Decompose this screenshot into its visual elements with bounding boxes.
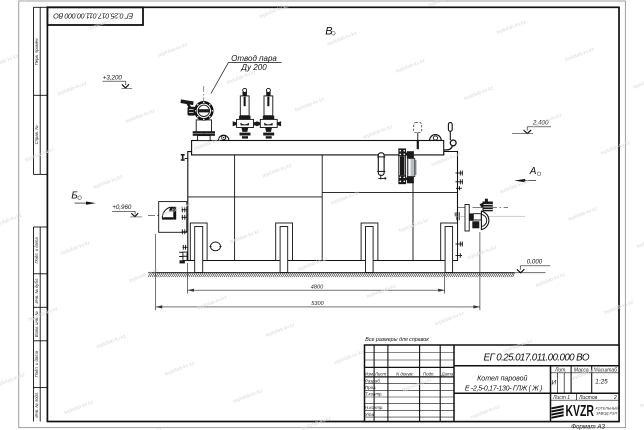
svg-text:Лист: Лист [374, 371, 387, 376]
svg-text:Листов: Листов [578, 395, 598, 401]
svg-text:Все размеры для справок: Все размеры для справок [365, 337, 429, 343]
svg-text:Б: Б [71, 191, 78, 202]
svg-text:И: И [552, 379, 557, 386]
svg-text:Утв.: Утв. [365, 412, 375, 417]
svg-text:ЕГ 0.25.017.011.00.000 ВО: ЕГ 0.25.017.011.00.000 ВО [53, 12, 133, 21]
svg-text:Котел паровой: Котел паровой [477, 375, 527, 383]
svg-text:Н.контр.: Н.контр. [365, 405, 384, 410]
svg-text:В: В [325, 25, 332, 37]
svg-text:4800: 4800 [311, 284, 324, 290]
svg-text:Разраб.: Разраб. [365, 378, 381, 383]
svg-text:Подп. и дата: Подп. и дата [34, 350, 39, 377]
svg-text:Лист 1: Лист 1 [552, 395, 570, 401]
svg-text:+3,200: +3,200 [103, 74, 123, 81]
svg-text:Справ. №: Справ. № [34, 125, 39, 144]
svg-text:ЗАВОД РЭП: ЗАВОД РЭП [596, 411, 617, 415]
svg-text:N докум.: N докум. [396, 371, 414, 376]
svg-text:Пров.: Пров. [365, 385, 377, 390]
svg-text:А: А [529, 166, 537, 177]
svg-text:Инв. № дубл.: Инв. № дубл. [34, 278, 39, 304]
svg-text:0,000: 0,000 [527, 259, 543, 266]
svg-text:5300: 5300 [311, 301, 324, 307]
svg-text:Т.контр.: Т.контр. [365, 392, 383, 397]
svg-text:Е -2,5-0,17-130- ГЛЖ ( Ж ): Е -2,5-0,17-130- ГЛЖ ( Ж ) [465, 386, 542, 393]
svg-text:Дата: Дата [441, 371, 454, 376]
svg-text:Отвод пара: Отвод пара [231, 54, 277, 63]
svg-text:KVZR: KVZR [566, 403, 595, 420]
svg-text:Перв. примен.: Перв. примен. [34, 37, 39, 65]
svg-text:Подп.: Подп. [423, 371, 435, 376]
svg-text:Формат А3: Формат А3 [571, 424, 605, 430]
svg-text:ЕГ 0.25.017.011.00.000 ВО: ЕГ 0.25.017.011.00.000 ВО [484, 352, 590, 363]
svg-text:Лит.: Лит. [554, 367, 567, 373]
svg-text:Подп. и дата: Подп. и дата [34, 237, 39, 264]
svg-text:2: 2 [613, 395, 617, 401]
svg-text:КОТЕЛЬНЫЙ: КОТЕЛЬНЫЙ [596, 407, 620, 411]
svg-text:Изм.: Изм. [365, 371, 374, 376]
svg-text:+0,960: +0,960 [112, 204, 132, 211]
svg-text:Инв. № подл.: Инв. № подл. [34, 392, 39, 418]
svg-text:1:25: 1:25 [595, 379, 608, 386]
